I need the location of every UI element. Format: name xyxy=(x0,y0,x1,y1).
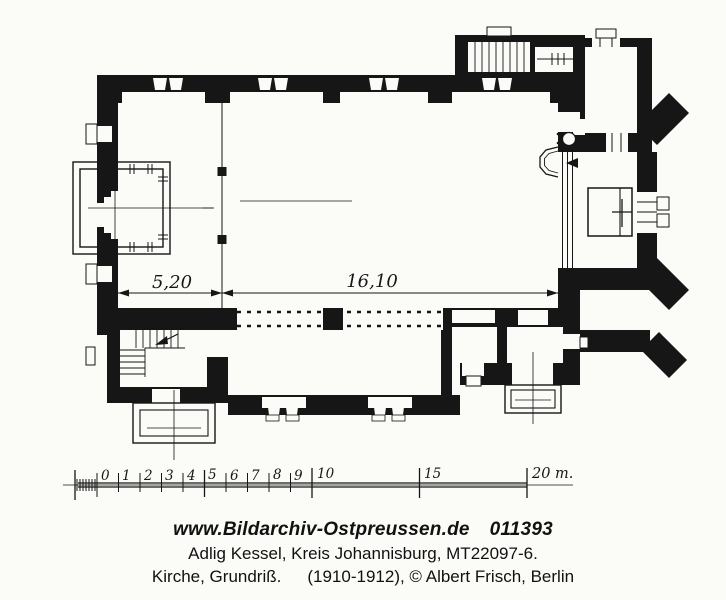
dimension-label-nave: 16,10 xyxy=(346,271,398,292)
caption-location-line: Adlig Kessel, Kreis Johannisburg, MT2209… xyxy=(0,544,726,564)
church-floor-plan-drawing: 5,20 16,10 xyxy=(0,0,726,600)
credit-text: (1910-1912), © Albert Frisch, Berlin xyxy=(307,567,574,586)
scale-tick-label: 1 xyxy=(122,468,131,484)
scale-tick-label: 8 xyxy=(273,467,282,483)
scanned-floor-plan-page: 5,20 16,10 xyxy=(0,0,726,600)
scale-tick-label: 15 xyxy=(424,466,441,482)
dimension-nave-length: 16,10 xyxy=(222,271,558,297)
scale-bar: 0 1 2 3 4 5 6 7 8 9 10 15 20 m. xyxy=(63,466,573,500)
scale-tick-label: 5 xyxy=(208,467,217,483)
staircase-steps xyxy=(115,330,185,377)
gallery-edge xyxy=(203,103,352,308)
south-arcade xyxy=(237,308,443,330)
door-swing xyxy=(563,133,576,146)
altar xyxy=(588,188,632,236)
caption-subject-line: Kirche, Grundriß.(1910-1912), © Albert F… xyxy=(0,567,726,587)
gallery-post xyxy=(218,235,227,244)
archive-website: www.Bildarchiv-Ostpreussen.de xyxy=(173,519,470,540)
scale-tick-label: 7 xyxy=(251,468,260,484)
scale-tick-label: 3 xyxy=(165,468,174,484)
subject-text: Kirche, Grundriß. xyxy=(152,567,281,586)
dimension-west-bay: 5,20 xyxy=(118,272,222,297)
location-text: Adlig Kessel, Kreis Johannisburg, MT2209… xyxy=(188,544,538,563)
scale-tick-label: 6 xyxy=(230,468,239,484)
scale-tick-label: 10 xyxy=(317,466,335,482)
scale-tick-label: 9 xyxy=(294,468,303,484)
scale-tick-label: 0 xyxy=(101,468,110,484)
scale-tick-label: 2 xyxy=(143,468,153,484)
archive-number: 011393 xyxy=(490,519,553,540)
scale-end-label: 20 m. xyxy=(531,466,573,482)
north-stair-annex xyxy=(468,27,573,72)
pulpit xyxy=(540,147,558,177)
caption-archive-line: www.Bildarchiv-Ostpreussen.de011393 xyxy=(0,519,726,541)
west-porch xyxy=(73,162,214,254)
dimension-label-west: 5,20 xyxy=(152,272,192,293)
scale-bar-labels: 0 1 2 3 4 5 6 7 8 9 10 15 20 m. xyxy=(101,466,573,484)
scale-tick-label: 4 xyxy=(186,468,196,484)
gallery-post xyxy=(218,167,227,176)
